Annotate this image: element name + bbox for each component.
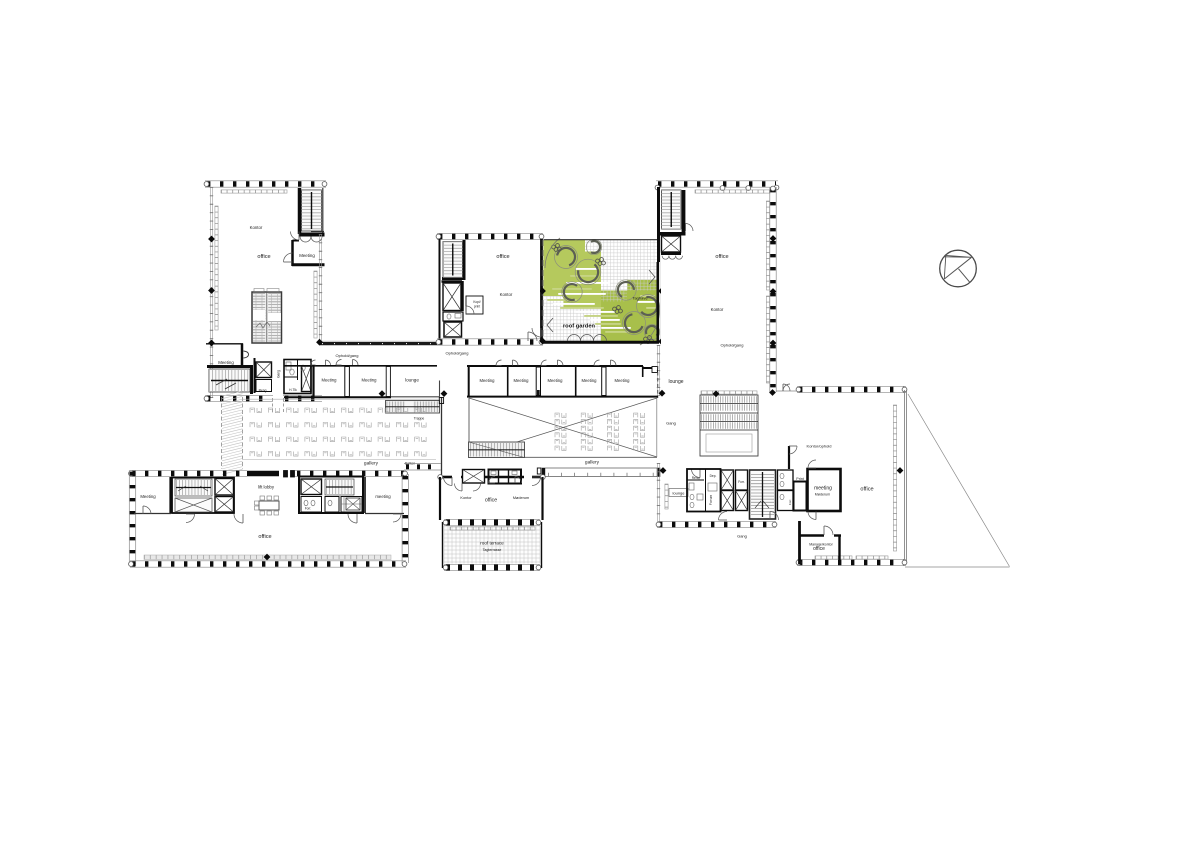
svg-text:Taghave: Taghave (632, 296, 648, 301)
svg-text:Møderum: Møderum (513, 496, 529, 500)
svg-text:Kopi/: Kopi/ (473, 300, 480, 304)
svg-text:office: office (258, 534, 271, 540)
svg-text:roof terrace: roof terrace (480, 541, 504, 546)
svg-text:Reng.: Reng. (692, 476, 701, 480)
svg-text:Meeting: Meeting (514, 378, 530, 383)
svg-text:roof garden: roof garden (563, 324, 596, 330)
svg-text:office: office (257, 254, 270, 260)
svg-text:Reng.: Reng. (259, 389, 268, 393)
svg-text:Print: Print (796, 477, 803, 481)
svg-text:Kontor: Kontor (250, 225, 263, 230)
svg-text:Ophold/gang: Ophold/gang (446, 351, 469, 356)
svg-text:office: office (496, 254, 509, 260)
svg-text:Gang: Gang (277, 370, 281, 378)
svg-text:meeting: meeting (814, 486, 832, 492)
svg-text:print: print (474, 305, 480, 309)
svg-text:lounge: lounge (672, 491, 685, 496)
svg-text:Ophold/gang: Ophold/gang (721, 343, 744, 348)
svg-text:Trappe: Trappe (414, 417, 425, 421)
svg-text:lounge: lounge (668, 379, 683, 385)
svg-text:Forr.: Forr. (305, 507, 312, 511)
svg-text:Gang: Gang (737, 534, 747, 539)
svg-text:Kontor: Kontor (711, 307, 724, 312)
svg-text:Gang: Gang (666, 421, 676, 426)
svg-text:meeting: meeting (375, 494, 391, 499)
svg-text:Forr.: Forr. (788, 499, 792, 505)
svg-text:Meeting: Meeting (615, 378, 631, 383)
svg-text:office: office (715, 254, 728, 260)
svg-text:Kontor/ophold: Kontor/ophold (807, 444, 832, 449)
svg-text:office: office (813, 546, 825, 552)
svg-text:Forr.: Forr. (738, 480, 745, 484)
svg-text:Meeting: Meeting (322, 378, 338, 383)
svg-text:Meeting: Meeting (480, 378, 496, 383)
svg-text:office: office (860, 487, 873, 493)
svg-text:Meeting: Meeting (548, 378, 564, 383)
svg-text:office: office (485, 498, 497, 504)
svg-text:Forrum: Forrum (709, 495, 713, 506)
svg-text:lounge: lounge (405, 378, 419, 383)
svg-text:H.Tlk: H.Tlk (289, 388, 297, 392)
svg-text:Tagterrasse: Tagterrasse (483, 548, 502, 552)
svg-text:gallery: gallery (364, 461, 379, 467)
svg-text:Kontor: Kontor (500, 292, 513, 297)
svg-text:gallery: gallery (585, 460, 600, 466)
svg-text:Meeting: Meeting (299, 253, 315, 258)
svg-text:lift lobby: lift lobby (258, 485, 275, 490)
svg-text:Meeting: Meeting (582, 378, 598, 383)
svg-text:Ophold/gang: Ophold/gang (336, 353, 359, 358)
svg-text:Møderum: Møderum (815, 493, 830, 497)
svg-text:Kontor: Kontor (460, 496, 472, 500)
svg-text:Dep.: Dep. (710, 474, 717, 478)
svg-text:Meeting: Meeting (218, 360, 234, 365)
svg-text:Meeting: Meeting (140, 494, 156, 499)
svg-text:Meeting: Meeting (362, 378, 378, 383)
